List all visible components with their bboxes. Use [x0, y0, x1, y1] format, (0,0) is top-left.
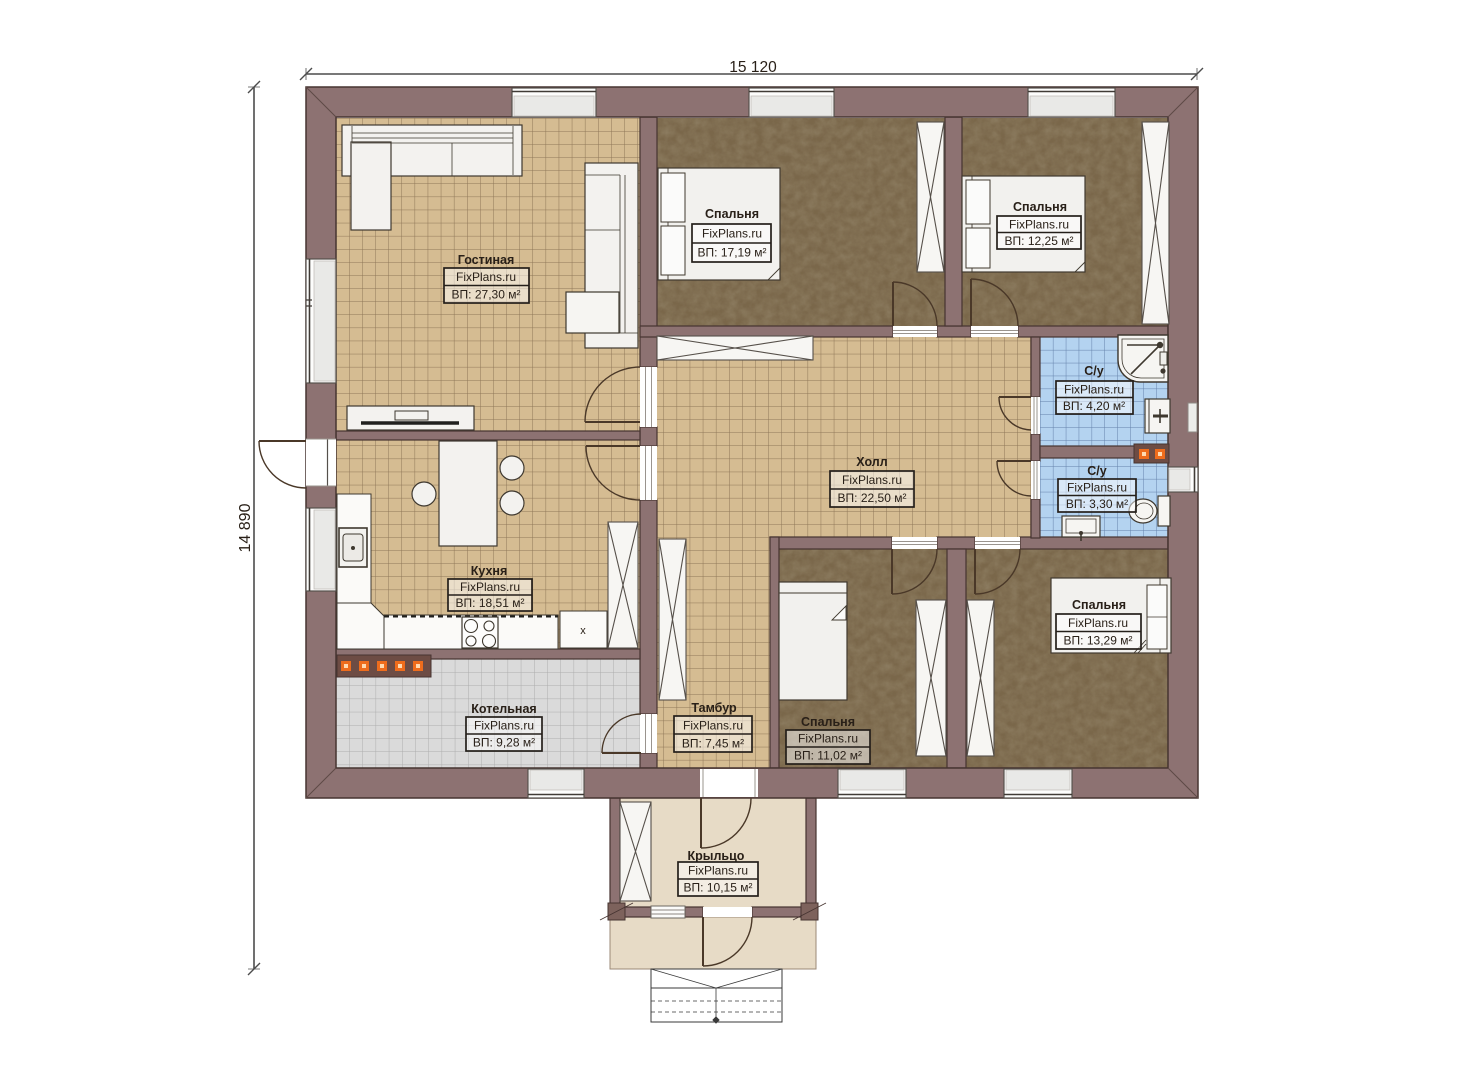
svg-text:ВП: 9,28 м²: ВП: 9,28 м²	[473, 736, 535, 750]
svg-text:С/у: С/у	[1087, 464, 1107, 478]
svg-text:x: x	[580, 625, 586, 637]
svg-text:ВП: 11,02 м²: ВП: 11,02 м²	[794, 749, 862, 763]
svg-text:ВП: 4,20 м²: ВП: 4,20 м²	[1063, 399, 1125, 413]
svg-text:ВП: 13,29 м²: ВП: 13,29 м²	[1064, 634, 1133, 648]
svg-text:FixPlans.ru: FixPlans.ru	[1009, 217, 1069, 231]
svg-text:FixPlans.ru: FixPlans.ru	[460, 580, 520, 594]
svg-text:ВП: 12,25 м²: ВП: 12,25 м²	[1005, 234, 1074, 248]
svg-text:Спальня: Спальня	[1072, 598, 1126, 612]
svg-text:FixPlans.ru: FixPlans.ru	[842, 473, 902, 487]
svg-text:С/у: С/у	[1084, 364, 1104, 378]
svg-text:ВП: 27,30 м²: ВП: 27,30 м²	[452, 287, 521, 301]
svg-text:ВП: 7,45 м²: ВП: 7,45 м²	[682, 737, 744, 751]
svg-text:15 120: 15 120	[729, 59, 777, 76]
svg-text:Гостиная: Гостиная	[458, 253, 515, 267]
svg-text:FixPlans.ru: FixPlans.ru	[683, 719, 743, 733]
svg-text:14 890: 14 890	[237, 503, 254, 552]
svg-text:FixPlans.ru: FixPlans.ru	[702, 227, 762, 241]
svg-text:FixPlans.ru: FixPlans.ru	[474, 719, 534, 733]
svg-text:Спальня: Спальня	[1013, 200, 1067, 214]
svg-text:Тамбур: Тамбур	[691, 701, 737, 715]
svg-text:Спальня: Спальня	[705, 207, 759, 221]
svg-text:ВП: 10,15 м²: ВП: 10,15 м²	[684, 881, 753, 895]
svg-text:Холл: Холл	[856, 455, 887, 469]
svg-text:Кухня: Кухня	[471, 564, 508, 578]
svg-text:ВП: 22,50 м²: ВП: 22,50 м²	[838, 491, 907, 505]
svg-text:FixPlans.ru: FixPlans.ru	[1064, 382, 1124, 396]
svg-text:Спальня: Спальня	[801, 715, 855, 729]
svg-text:FixPlans.ru: FixPlans.ru	[456, 270, 516, 284]
svg-text:Крыльцо: Крыльцо	[688, 849, 745, 863]
svg-text:FixPlans.ru: FixPlans.ru	[1068, 616, 1128, 630]
svg-text:ВП: 3,30 м²: ВП: 3,30 м²	[1066, 497, 1128, 511]
svg-text:FixPlans.ru: FixPlans.ru	[688, 864, 748, 878]
svg-text:FixPlans.ru: FixPlans.ru	[798, 732, 858, 746]
svg-text:ВП: 17,19 м²: ВП: 17,19 м²	[698, 246, 767, 260]
svg-text:Котельная: Котельная	[471, 702, 536, 716]
svg-text:ВП: 18,51 м²: ВП: 18,51 м²	[456, 596, 525, 610]
svg-text:FixPlans.ru: FixPlans.ru	[1067, 480, 1127, 494]
